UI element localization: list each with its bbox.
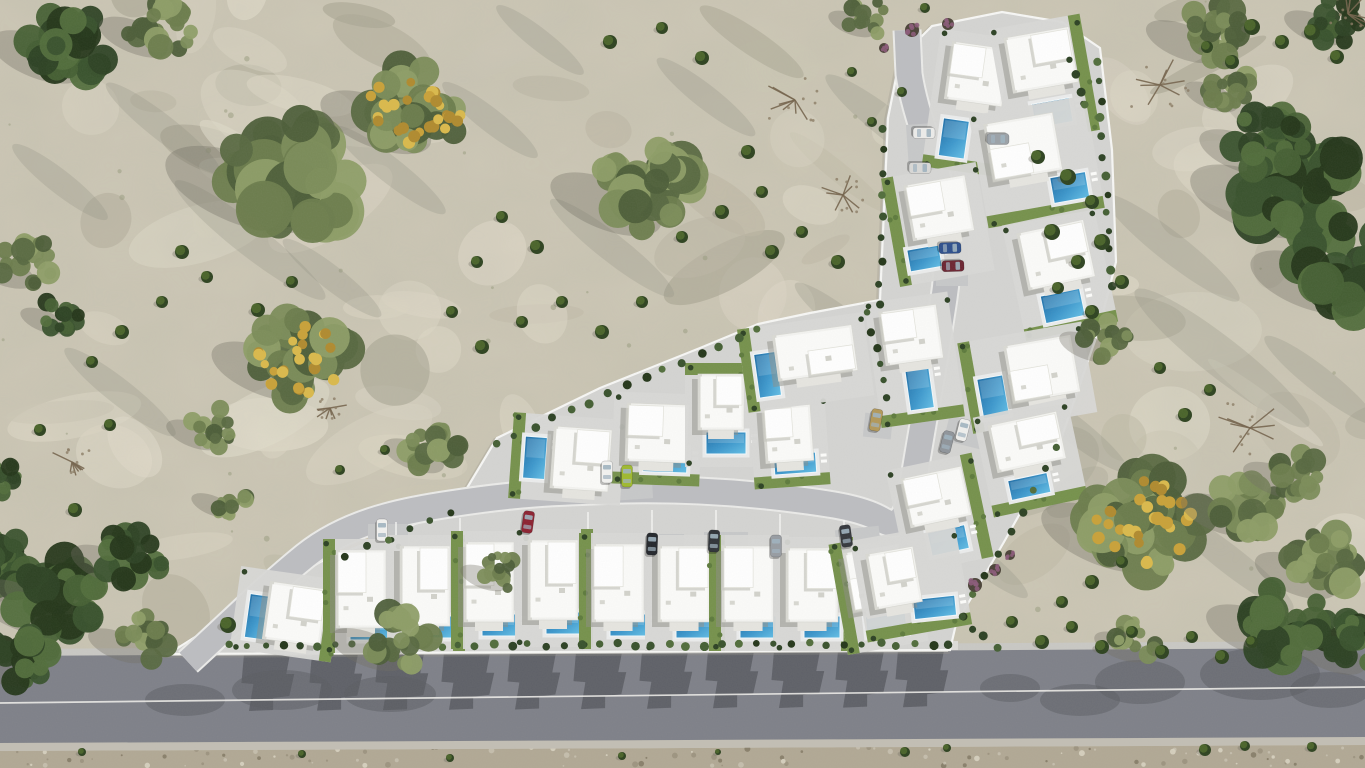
scene-svg (0, 0, 1365, 768)
photo-grain-overlay (0, 0, 1365, 768)
aerial-villa-development-render (0, 0, 1365, 768)
grain-rect (0, 0, 1365, 768)
